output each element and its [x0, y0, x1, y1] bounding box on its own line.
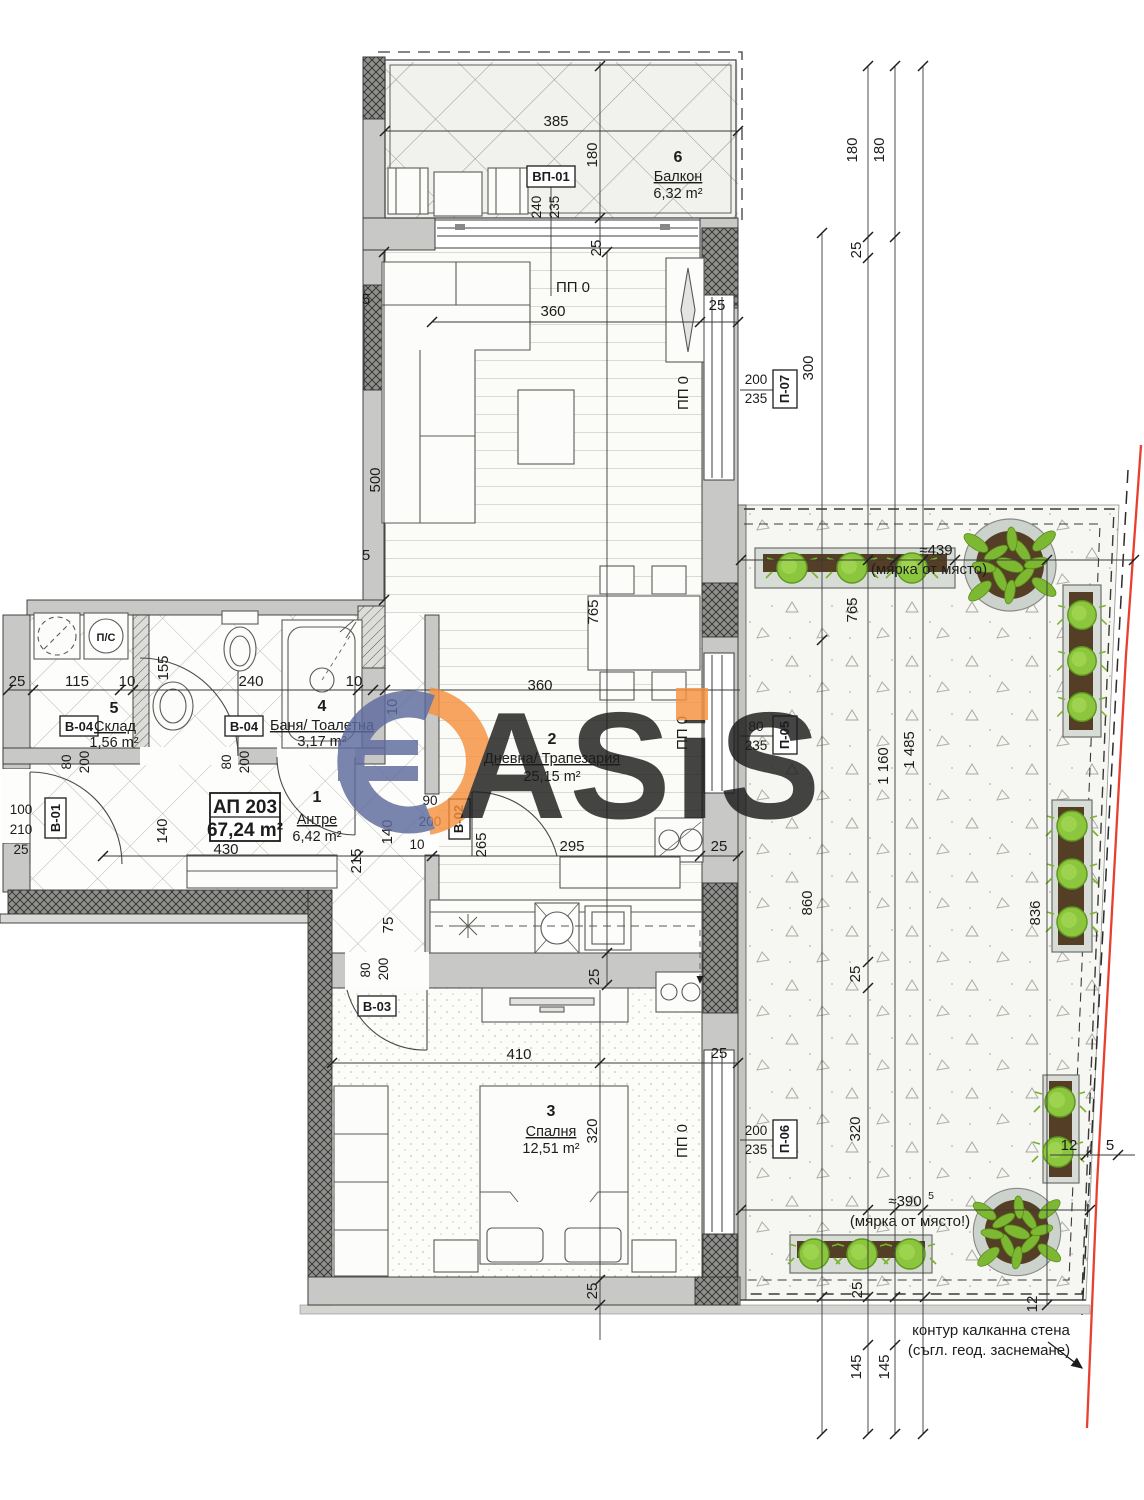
dim-410: 410	[506, 1046, 531, 1063]
nightstand	[632, 1240, 676, 1272]
ref-b04: В-04	[230, 719, 259, 734]
planter-right-upper	[1057, 585, 1106, 737]
room-bath-number: 4	[318, 698, 327, 715]
wall	[363, 218, 435, 250]
terrace-dim-approx390-sup: 5	[928, 1190, 934, 1202]
room-hall-number: 1	[313, 789, 322, 806]
hall-bench	[560, 857, 680, 888]
dim-765: 765	[585, 599, 602, 624]
dim-115: 115	[65, 673, 89, 690]
room-hall-name: Антре	[297, 812, 337, 828]
dim-430: 430	[213, 841, 238, 858]
dim-25: 25	[847, 966, 864, 983]
logo-o-bar	[338, 740, 418, 755]
dim-235: 235	[745, 1142, 768, 1157]
window-p07	[704, 295, 734, 480]
boundary-band	[300, 1305, 1090, 1314]
dim-10: 10	[409, 837, 424, 852]
ref-b01: В-01	[48, 804, 63, 832]
contour-note-line2: (съгл. геод. заснемане)	[908, 1342, 1070, 1359]
dim-210: 210	[10, 822, 33, 837]
floor-plan-drawing: 385 180 6 Балкон 6,32 m² ВП-01 240 235 1…	[0, 0, 1144, 1500]
dim-145: 145	[848, 1354, 865, 1379]
dim-1485: 1 485	[901, 731, 918, 769]
dim-80: 80	[358, 962, 373, 977]
dim-25: 25	[848, 242, 865, 259]
room-balcony-name: Балкон	[654, 169, 703, 185]
logo-o-bar	[338, 766, 418, 781]
wall	[27, 600, 385, 615]
dim-25: 25	[9, 673, 26, 690]
toilet-tank	[222, 611, 258, 624]
bedroom-tv	[510, 998, 594, 1005]
dining-chair	[652, 566, 686, 594]
terrace-dim-approx439: ≈439	[919, 542, 952, 559]
coffee-table	[518, 390, 574, 464]
dim-25: 25	[849, 1282, 866, 1299]
ref-vp01: ВП-01	[532, 169, 570, 184]
dim-25: 25	[13, 842, 28, 857]
dim-765: 765	[844, 597, 861, 622]
room-hall-area: 6,42 m²	[292, 829, 341, 845]
contour-note-line1: контур калканна стена	[912, 1322, 1070, 1339]
wall-column	[363, 57, 385, 119]
boiler-niche	[656, 972, 702, 1012]
room-storage-name: Склад	[94, 719, 137, 735]
terrace-dim-approx390: ≈390	[888, 1193, 921, 1210]
dim-80: 80	[59, 754, 74, 769]
bedroom-wardrobe	[334, 1086, 388, 1276]
room-balcony-number: 6	[674, 149, 683, 166]
wall-column	[703, 883, 737, 1013]
terrace-note-bottom: (мярка от място!)	[850, 1213, 970, 1230]
pillow	[487, 1228, 543, 1262]
dim-25: 25	[588, 240, 605, 257]
wall-external-bottom	[308, 1277, 740, 1305]
wall-external-west	[308, 890, 332, 1305]
watermark-logo: ASiS	[338, 681, 823, 851]
dim-235: 235	[745, 391, 768, 406]
balcony-chair	[488, 168, 528, 214]
ref-b03: В-03	[363, 999, 391, 1014]
toilet	[224, 627, 256, 671]
dim-155: 155	[155, 655, 172, 680]
dim-215: 215	[348, 848, 365, 873]
dim-1160: 1 160	[875, 747, 892, 785]
window-p06	[704, 1050, 734, 1234]
room-bedroom-number: 3	[547, 1103, 556, 1120]
room-storage-area: 1,56 m²	[89, 735, 138, 751]
ref-b04: В-04	[65, 719, 94, 734]
dim-5: 5	[362, 547, 370, 564]
dim-320: 320	[847, 1116, 864, 1141]
terrace-note-top: (мярка от място)	[871, 561, 987, 578]
dim-5: 5	[1106, 1137, 1114, 1154]
dim-12: 12	[1061, 1137, 1078, 1154]
dining-chair	[600, 566, 634, 594]
logo-letters: ASiS	[457, 681, 824, 851]
room-bedroom-name: Спалня	[526, 1124, 577, 1140]
level-pp0: ПП 0	[675, 376, 692, 410]
room-balcony-area: 6,32 m²	[653, 186, 702, 202]
dim-500: 500	[367, 467, 384, 492]
dining-table	[588, 596, 700, 670]
dim-200: 200	[745, 1123, 768, 1138]
dim-25: 25	[586, 969, 603, 986]
dim-240: 240	[529, 196, 544, 219]
level-pp0: ПП 0	[556, 279, 590, 296]
dim-180: 180	[844, 137, 861, 162]
balcony-chair	[388, 168, 428, 214]
dim-180-balcony: 180	[584, 142, 601, 167]
level-pp0: ПП 0	[674, 1124, 691, 1158]
dim-25: 25	[709, 297, 726, 314]
dim-140: 140	[154, 818, 171, 843]
dim-10: 10	[119, 673, 136, 690]
wall-external-south	[8, 890, 308, 914]
dim-25: 25	[584, 1283, 601, 1300]
room-storage-number: 5	[110, 700, 119, 717]
planter-bottom-row	[788, 1235, 936, 1273]
dim-145: 145	[876, 1354, 893, 1379]
dim-200: 200	[376, 958, 391, 981]
floor-plan-page: 385 180 6 Балкон 6,32 m² ВП-01 240 235 1…	[0, 0, 1144, 1500]
ref-p07: П-07	[777, 375, 792, 403]
dim-10: 10	[346, 673, 363, 690]
kitchen-sink	[541, 912, 573, 944]
wall-outer-band	[0, 914, 316, 923]
dim-836: 836	[1027, 900, 1044, 925]
wall-column	[702, 583, 738, 637]
dim-320: 320	[584, 1118, 601, 1143]
dim-180: 180	[871, 137, 888, 162]
apartment-code: АП 203	[213, 797, 277, 818]
dim-80: 80	[219, 754, 234, 769]
apartment-area: 67,24 m²	[207, 820, 283, 841]
dim-235: 235	[547, 196, 562, 219]
planter-right-middle	[1046, 800, 1098, 952]
dim-240: 240	[238, 673, 263, 690]
dim-5: 5	[362, 291, 370, 308]
dim-25: 25	[711, 1045, 728, 1062]
dim-385: 385	[543, 113, 568, 130]
dim-200: 200	[745, 372, 768, 387]
logo-i-dot	[676, 688, 708, 720]
dim-200: 200	[237, 751, 252, 774]
wall-column	[695, 1277, 738, 1305]
room-bedroom-area: 12,51 m²	[522, 1141, 579, 1157]
dim-100: 100	[10, 802, 33, 817]
dim-200: 200	[77, 751, 92, 774]
pillow	[565, 1228, 621, 1262]
nightstand	[434, 1240, 478, 1272]
balcony-table	[434, 172, 482, 216]
dim-860: 860	[799, 890, 816, 915]
window-vp01	[435, 220, 700, 248]
dim-300: 300	[800, 355, 817, 380]
dim-12: 12	[1024, 1296, 1041, 1313]
ref-p06: П-06	[777, 1125, 792, 1153]
dim-75: 75	[380, 917, 397, 934]
ref-ps: П/С	[97, 632, 116, 644]
dim-360: 360	[540, 303, 565, 320]
